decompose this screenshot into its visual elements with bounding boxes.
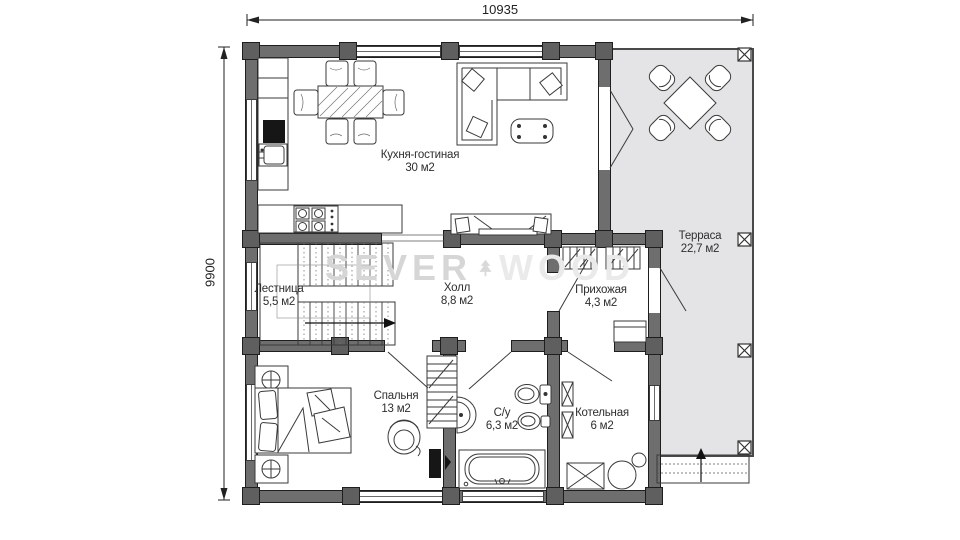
terrace-steps bbox=[657, 448, 749, 483]
bed bbox=[255, 388, 351, 453]
pillow-icon bbox=[258, 422, 277, 451]
oven-icon bbox=[263, 120, 285, 143]
room-label-hall: Холл8,8 м2 bbox=[407, 282, 507, 308]
washing-machine-icon bbox=[567, 463, 604, 489]
expansion-tank-icon bbox=[632, 453, 646, 467]
kitchen-sink-icon bbox=[259, 144, 287, 166]
dimension-line-left bbox=[218, 47, 230, 500]
dimension-left-label: 9900 bbox=[203, 249, 218, 297]
pass-through-opening bbox=[382, 235, 445, 241]
pillow-icon bbox=[258, 390, 277, 419]
room-label-kitchen-living: Кухня-гостиная30 м2 bbox=[350, 149, 490, 175]
room-label-entry: Прихожая4,3 м2 bbox=[551, 284, 651, 310]
tv-console bbox=[451, 214, 551, 235]
tv-icon bbox=[479, 229, 537, 235]
wall-marker-icon bbox=[445, 455, 451, 470]
room-label-terrace: Терраса22,7 м2 bbox=[650, 230, 750, 256]
room-label-bedroom: Спальня13 м2 bbox=[346, 390, 446, 416]
nightstand-left-bottom bbox=[255, 455, 288, 483]
room-label-stairs: Лестница5,5 м2 bbox=[238, 283, 320, 309]
room-label-bathroom: С/у6,3 м2 bbox=[462, 407, 542, 433]
dining-table bbox=[318, 86, 383, 118]
dimension-top-label: 10935 bbox=[460, 2, 540, 17]
bedroom-tv-icon bbox=[429, 449, 441, 478]
entry-bench bbox=[614, 321, 646, 342]
kitchen-counter-bottom bbox=[258, 205, 402, 233]
bedroom-armchair bbox=[388, 420, 420, 456]
furniture-layer bbox=[0, 0, 960, 540]
bathtub bbox=[459, 450, 545, 488]
entry-wardrobes bbox=[563, 247, 640, 269]
toilet-icon bbox=[515, 385, 551, 405]
boiler-tank-icon bbox=[608, 461, 636, 489]
room-label-boiler: Котельная6 м2 bbox=[552, 407, 652, 433]
coffee-table bbox=[511, 119, 553, 143]
floor-plan: SEVER WOOD Кухня-гостиная30 м2 Терраса22… bbox=[0, 0, 960, 540]
kitchen-counter-left bbox=[258, 58, 288, 190]
